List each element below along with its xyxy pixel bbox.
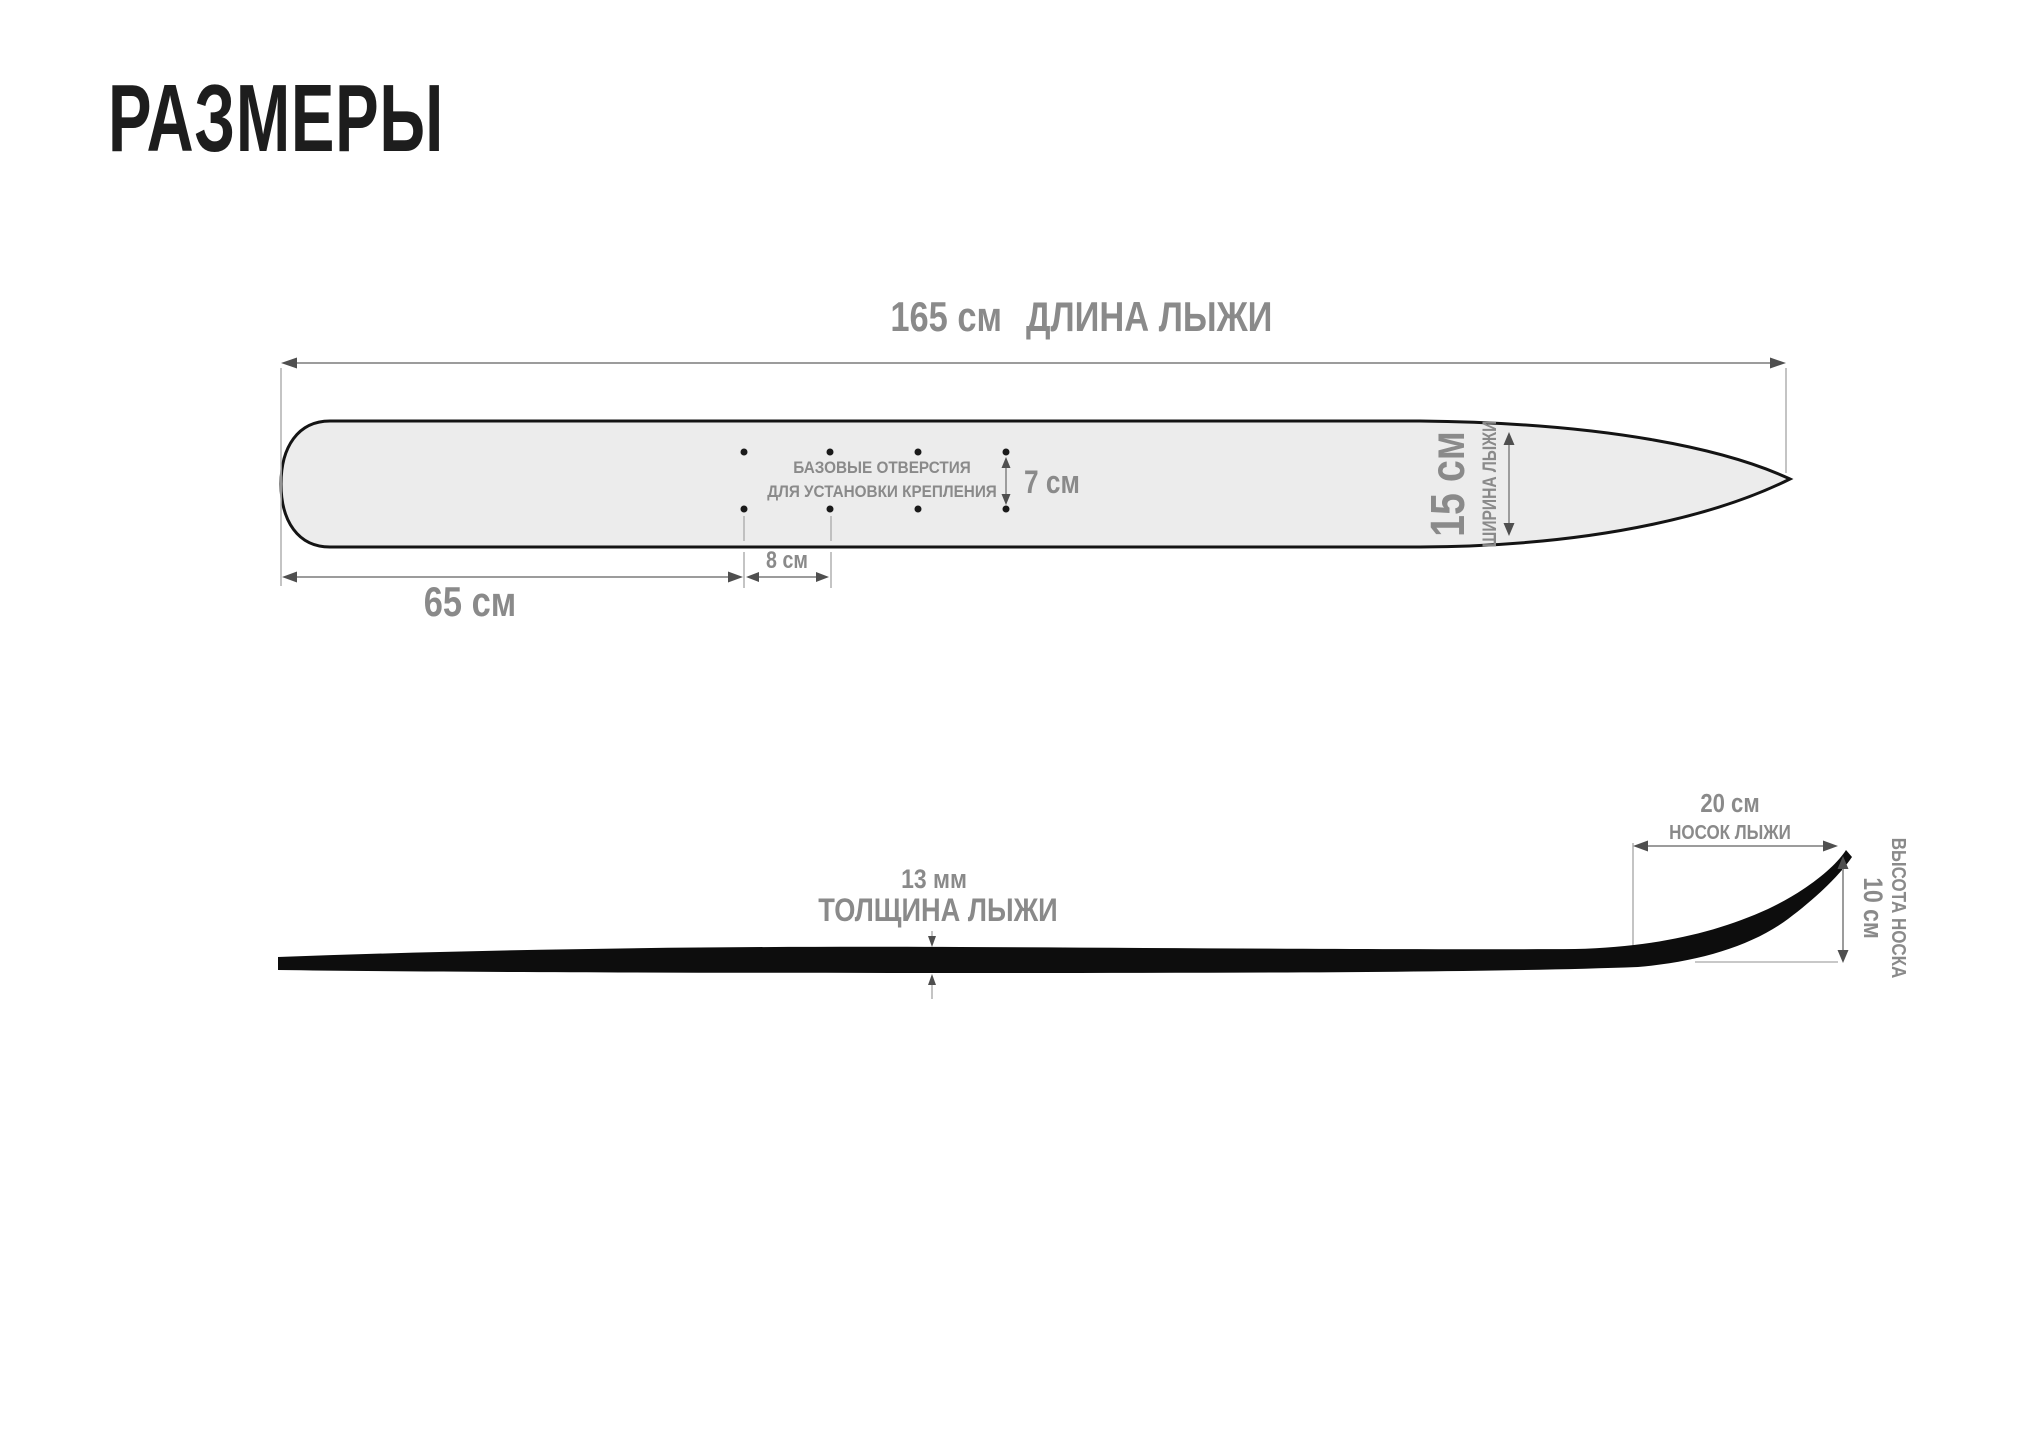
hole-gap-value-label: 8 см	[766, 546, 808, 573]
holes-note-line2: ДЛЯ УСТАНОВКИ КРЕПЛЕНИЯ	[767, 482, 997, 501]
ski-side-profile	[278, 850, 1852, 973]
length-value-label: 165 см	[890, 294, 1002, 341]
tail-value-label: 65 см	[424, 579, 516, 626]
hole-gap-arrow-left-icon	[746, 572, 759, 582]
tip-length-arrow-right-icon	[1823, 841, 1838, 852]
tip-length-name-label: НОСОК ЛЫЖИ	[1669, 821, 1791, 844]
tail-arrow-right-icon	[728, 572, 743, 583]
page-title: РАЗМЕРЫ	[108, 66, 444, 172]
length-arrow-right-icon	[1770, 358, 1786, 369]
holes-note-line1: БАЗОВЫЕ ОТВЕРСТИЯ	[793, 458, 970, 477]
tip-length-value-label: 20 см	[1700, 789, 1759, 818]
length-arrow-left-icon	[281, 358, 297, 369]
width-name-label: ШИРИНА ЛЫЖИ	[1479, 421, 1501, 548]
tail-arrow-left-icon	[282, 572, 297, 583]
thickness-value-label: 13 мм	[901, 864, 967, 894]
thickness-arrow-down-icon	[928, 936, 936, 947]
diagram-drawing: РАЗМЕРЫ	[0, 0, 2037, 1440]
ski-dimensions-diagram: РАЗМЕРЫ	[0, 0, 2037, 1440]
thickness-name-label: ТОЛЩИНА ЛЫЖИ	[818, 893, 1057, 929]
width-value-label: 15 см	[1421, 431, 1475, 537]
row-gap-value-label: 7 см	[1024, 466, 1080, 501]
tip-height-arrow-down-icon	[1838, 950, 1849, 963]
tip-height-value-label: 10 см	[1858, 877, 1888, 939]
thickness-arrow-up-icon	[928, 974, 936, 985]
length-name-label: ДЛИНА ЛЫЖИ	[1026, 294, 1272, 341]
tip-height-name-label: ВЫСОТА НОСКА	[1888, 838, 1911, 979]
hole-gap-arrow-right-icon	[816, 572, 829, 582]
tip-length-arrow-left-icon	[1633, 841, 1648, 852]
